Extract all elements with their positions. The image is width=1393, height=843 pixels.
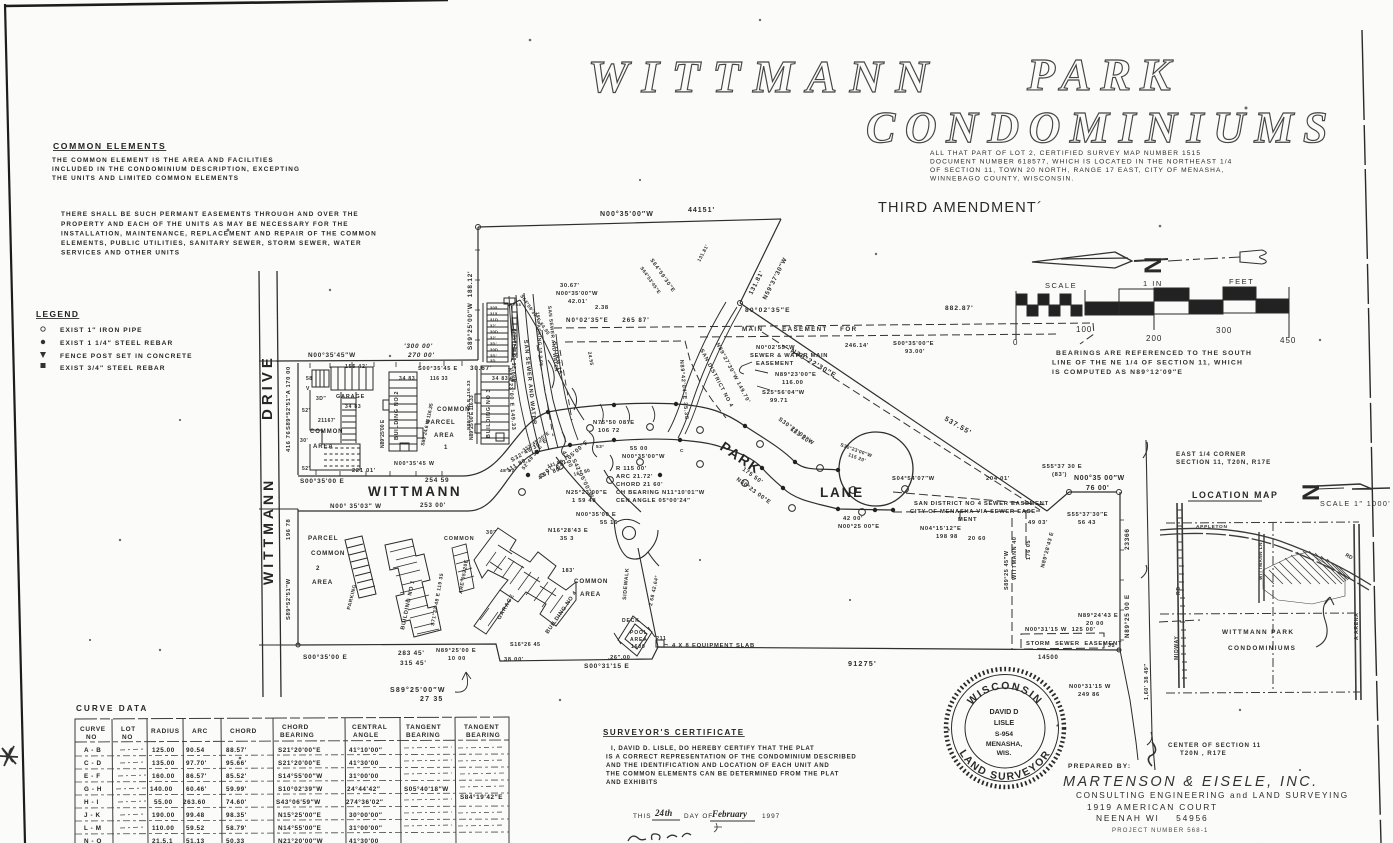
svg-text:DAY OF: DAY OF bbox=[684, 813, 713, 820]
svg-text:30D: 30D bbox=[490, 347, 498, 352]
svg-text:253 00': 253 00' bbox=[420, 502, 446, 509]
svg-text:21.5.1: 21.5.1 bbox=[152, 838, 173, 843]
svg-text:ANGLE: ANGLE bbox=[353, 732, 379, 739]
svg-text:52': 52' bbox=[302, 466, 310, 472]
svg-text:BEARING: BEARING bbox=[466, 732, 500, 739]
svg-text:S89°25 45″W: S89°25 45″W bbox=[1004, 550, 1010, 590]
svg-text:3D: 3D bbox=[490, 358, 496, 363]
svg-text:48°97': 48°97' bbox=[500, 468, 516, 474]
svg-text:COMMON: COMMON bbox=[444, 536, 475, 542]
svg-text:SCALE: SCALE bbox=[1045, 281, 1077, 290]
svg-text:ARC 21.72': ARC 21.72' bbox=[616, 474, 653, 480]
svg-text:20 60: 20 60 bbox=[968, 536, 986, 542]
svg-text:EXIST 1″ IRON PIPE: EXIST 1″ IRON PIPE bbox=[60, 327, 143, 334]
svg-text:93.00': 93.00' bbox=[905, 349, 925, 355]
svg-text:S-954: S-954 bbox=[995, 731, 1013, 738]
svg-text:N89°25'00 E: N89°25'00 E bbox=[436, 648, 476, 654]
svg-text:116.00: 116.00 bbox=[782, 380, 804, 386]
svg-text:50.33: 50.33 bbox=[226, 838, 245, 843]
svg-text:N89°23'00″E: N89°23'00″E bbox=[775, 372, 817, 378]
svg-text:INSTALLATION, MAINTENANCE, R: INSTALLATION, MAINTENANCE, REPLACEMENT A… bbox=[61, 231, 377, 238]
svg-text:3D″: 3D″ bbox=[316, 396, 326, 402]
svg-text:THERE SHALL BE SUCH PERMA: THERE SHALL BE SUCH PERMANT EASEMENTS TH… bbox=[61, 211, 359, 218]
svg-text:N00°31'15 W: N00°31'15 W bbox=[1069, 684, 1111, 690]
svg-text:97.70': 97.70' bbox=[186, 760, 207, 767]
svg-text:30.67': 30.67' bbox=[470, 365, 492, 372]
svg-text:52': 52' bbox=[302, 408, 310, 414]
svg-text:TANGENT: TANGENT bbox=[406, 724, 441, 731]
svg-text:53°: 53° bbox=[596, 444, 604, 450]
svg-text:S00°35'00″E: S00°35'00″E bbox=[893, 341, 934, 347]
svg-text:110.00: 110.00 bbox=[152, 825, 175, 832]
svg-text:1,60' 38 49″: 1,60' 38 49″ bbox=[1144, 663, 1150, 700]
svg-text:BEARINGS ARE REFERENCED TO: BEARINGS ARE REFERENCED TO THE SOUTH bbox=[1056, 350, 1252, 357]
svg-text:99.48: 99.48 bbox=[186, 812, 205, 819]
svg-text:COMMON ELEMENTS: COMMON ELEMENTS bbox=[53, 141, 166, 151]
svg-text:AND EXHIBITS: AND EXHIBITS bbox=[606, 779, 658, 786]
svg-text:2.38: 2.38 bbox=[595, 305, 609, 311]
svg-text:CH BEARING N11°10'01″W: CH BEARING N11°10'01″W bbox=[616, 490, 705, 496]
svg-text:N04°15'12″E: N04°15'12″E bbox=[920, 526, 962, 532]
svg-text:1997: 1997 bbox=[762, 813, 780, 820]
svg-text:24°44'42″: 24°44'42″ bbox=[347, 785, 380, 793]
svg-text:176 05: 176 05 bbox=[1026, 540, 1032, 560]
svg-text:1919 AMERICAN COURT: 1919 AMERICAN COURT bbox=[1087, 802, 1218, 812]
svg-text:N89°25 00 E: N89°25 00 E bbox=[1124, 594, 1131, 638]
svg-text:N00°35'00″W: N00°35'00″W bbox=[556, 291, 598, 297]
svg-text:COMMON: COMMON bbox=[311, 550, 345, 557]
svg-text:41°10'00″: 41°10'00″ bbox=[349, 746, 382, 754]
svg-text:THE COMMON ELEMENT IS THE: THE COMMON ELEMENT IS THE AREA AND FACIL… bbox=[52, 157, 274, 164]
svg-text:S14°55'00″W: S14°55'00″W bbox=[278, 772, 323, 780]
svg-text:300: 300 bbox=[1216, 326, 1232, 335]
svg-text:WITTMANN LN: WITTMANN LN bbox=[1258, 542, 1263, 580]
svg-text:DECK: DECK bbox=[622, 618, 640, 624]
svg-text:35 3: 35 3 bbox=[560, 536, 574, 542]
svg-text:249 86: 249 86 bbox=[1078, 692, 1100, 698]
svg-text:AREA: AREA bbox=[313, 444, 334, 450]
svg-text:60.46': 60.46' bbox=[186, 786, 207, 793]
svg-text:315: 315 bbox=[490, 311, 498, 316]
svg-text:74.60': 74.60' bbox=[226, 799, 247, 806]
svg-text:55 00: 55 00 bbox=[630, 446, 648, 452]
svg-text:SECTION 11, T20N, R17E: SECTION 11, T20N, R17E bbox=[1176, 459, 1271, 466]
svg-text:416 76: 416 76 bbox=[286, 430, 292, 452]
svg-text:February: February bbox=[711, 809, 748, 819]
svg-text:N15°25'00″E: N15°25'00″E bbox=[278, 811, 321, 819]
svg-text:211: 211 bbox=[656, 636, 667, 642]
svg-text:C - D: C - D bbox=[84, 760, 102, 767]
svg-text:WITTMANN: WITTMANN bbox=[260, 477, 276, 585]
svg-text:99.71: 99.71 bbox=[770, 398, 788, 404]
svg-text:2.38: 2.38 bbox=[512, 302, 521, 307]
svg-text:AREA: AREA bbox=[580, 591, 601, 598]
svg-text:PARCEL: PARCEL bbox=[308, 535, 338, 542]
svg-text:PROJECT NUMBER 568-1: PROJECT NUMBER 568-1 bbox=[1112, 828, 1209, 834]
svg-text:198 98: 198 98 bbox=[936, 534, 958, 540]
svg-text:98.35': 98.35' bbox=[226, 812, 247, 819]
svg-text:41°30'00: 41°30'00 bbox=[349, 837, 379, 843]
svg-text:N00°35 00″W: N00°35 00″W bbox=[1074, 474, 1125, 482]
svg-text:*: * bbox=[1056, 723, 1059, 732]
svg-text:N0°02'55″W: N0°02'55″W bbox=[756, 345, 795, 351]
svg-text:450: 450 bbox=[1280, 336, 1296, 345]
svg-text:S25°56'04″W: S25°56'04″W bbox=[762, 390, 805, 396]
svg-text:LANE: LANE bbox=[820, 485, 864, 500]
svg-text:55.00: 55.00 bbox=[154, 799, 173, 806]
svg-text:34 83: 34 83 bbox=[399, 376, 416, 382]
svg-text:263.60: 263.60 bbox=[183, 799, 206, 806]
svg-text:CITY OF MENASHA VIA SEWER: CITY OF MENASHA VIA SEWER EASE bbox=[910, 509, 1036, 515]
svg-text:N21°20'00″W: N21°20'00″W bbox=[278, 837, 323, 843]
svg-text:LOCATION MAP: LOCATION MAP bbox=[1192, 490, 1278, 500]
svg-text:N00°25 00″E: N00°25 00″E bbox=[838, 524, 880, 530]
svg-text:IS COMPUTED AS N89°12'09″E: IS COMPUTED AS N89°12'09″E bbox=[1052, 368, 1183, 376]
svg-text:270 00': 270 00' bbox=[407, 352, 435, 359]
svg-text:CEN ANGLE 05°00'24″: CEN ANGLE 05°00'24″ bbox=[616, 498, 691, 504]
svg-text:S00°35'00 E: S00°35'00 E bbox=[303, 653, 348, 661]
svg-text:LINE OF THE NE 1/4 OF SEC: LINE OF THE NE 1/4 OF SECTION 11, WHICH bbox=[1052, 360, 1243, 367]
svg-text:S04°54'07″W: S04°54'07″W bbox=[892, 476, 935, 482]
svg-text:A ARENA: A ARENA bbox=[1354, 613, 1360, 640]
svg-text:S89°25'00″W 188.12': S89°25'00″W 188.12' bbox=[466, 271, 474, 350]
svg-text:N00°35'45 W: N00°35'45 W bbox=[394, 461, 435, 467]
svg-text:WITTMANN: WITTMANN bbox=[588, 51, 941, 102]
svg-text:274°36'02″: 274°36'02″ bbox=[346, 798, 384, 806]
svg-text:41°30'00: 41°30'00 bbox=[349, 759, 379, 767]
svg-text:55 16: 55 16 bbox=[600, 520, 618, 526]
svg-text:91275': 91275' bbox=[848, 659, 877, 668]
svg-text:34 83: 34 83 bbox=[345, 404, 362, 410]
svg-text:30D: 30D bbox=[490, 329, 498, 334]
svg-text:24 th: 24 th bbox=[654, 808, 672, 818]
svg-text:S00°31'15 E: S00°31'15 E bbox=[584, 662, 630, 670]
svg-text:196 78: 196 78 bbox=[286, 518, 292, 540]
svg-text:56 43: 56 43 bbox=[1078, 520, 1096, 526]
svg-text:SURVEYOR'S CERTIFICATE: SURVEYOR'S CERTIFICATE bbox=[603, 728, 745, 737]
svg-text:315 45': 315 45' bbox=[400, 660, 427, 667]
svg-text:THIS: THIS bbox=[633, 813, 652, 820]
svg-text:*: * bbox=[947, 727, 950, 736]
svg-text:AND THE IDENTIFICATION AND: AND THE IDENTIFICATION AND LOCATION OF E… bbox=[606, 762, 830, 769]
svg-text:THE UNITS AND LIMITED COM: THE UNITS AND LIMITED COMMON ELEMENTS bbox=[52, 175, 239, 182]
svg-text:CURVE DATA: CURVE DATA bbox=[76, 704, 148, 713]
svg-text:E - F: E - F bbox=[84, 773, 101, 780]
svg-text:LISLE: LISLE bbox=[994, 718, 1015, 727]
svg-text:COMMON: COMMON bbox=[574, 578, 608, 585]
svg-text:190.00: 190.00 bbox=[152, 812, 175, 819]
svg-text:1: 1 bbox=[444, 445, 448, 451]
svg-text:ALL THAT PART OF LOT 2, CE: ALL THAT PART OF LOT 2, CERTIFIED SURVEY… bbox=[930, 150, 1201, 157]
svg-text:THIRD AMENDMENT´: THIRD AMENDMENT´ bbox=[878, 200, 1043, 216]
svg-text:882.87': 882.87' bbox=[945, 305, 974, 312]
svg-text:RD: RD bbox=[1176, 586, 1182, 595]
svg-text:C: C bbox=[680, 448, 684, 454]
svg-text:SCALE 1″ 1000': SCALE 1″ 1000' bbox=[1320, 499, 1391, 508]
svg-text:254 59: 254 59 bbox=[425, 477, 449, 484]
svg-text:N89°25'00 E: N89°25'00 E bbox=[380, 419, 386, 448]
svg-text:CONDOMINIUMS: CONDOMINIUMS bbox=[866, 103, 1337, 152]
svg-text:125.00: 125.00 bbox=[152, 747, 175, 754]
svg-text:MENT: MENT bbox=[958, 517, 977, 523]
svg-text:BEARING: BEARING bbox=[280, 732, 314, 739]
svg-text:H - I: H - I bbox=[84, 799, 99, 806]
svg-text:DAVID D: DAVID D bbox=[989, 707, 1018, 716]
svg-text:85.52': 85.52' bbox=[226, 773, 247, 780]
svg-text:200: 200 bbox=[1146, 334, 1162, 343]
svg-text:N00°31'15 W 125 00': N00°31'15 W 125 00' bbox=[1025, 627, 1096, 633]
svg-text:MIDWAY: MIDWAY bbox=[1174, 636, 1180, 660]
svg-text:S10°02'39″W: S10°02'39″W bbox=[278, 785, 323, 793]
svg-text:S89°25'00″W: S89°25'00″W bbox=[390, 686, 446, 694]
svg-text:S00°35'00 E: S00°35'00 E bbox=[300, 477, 345, 485]
svg-text:246.14': 246.14' bbox=[845, 343, 869, 349]
svg-text:32': 32' bbox=[490, 323, 496, 328]
svg-text:CONSULTING ENGINEERING and: CONSULTING ENGINEERING and LAND SURVEYIN… bbox=[1076, 791, 1349, 800]
svg-text:DRIVE: DRIVE bbox=[259, 354, 276, 420]
svg-text:S55°37 30 E: S55°37 30 E bbox=[1042, 464, 1082, 470]
svg-text:AREA: AREA bbox=[630, 637, 648, 643]
svg-text:EXIST 3/4″ STEEL REBAR: EXIST 3/4″ STEEL REBAR bbox=[60, 365, 166, 372]
svg-text:L - M: L - M bbox=[84, 825, 102, 832]
svg-text:S89°52'51″A 170 00: S89°52'51″A 170 00 bbox=[286, 366, 292, 430]
svg-text:N16°28'43 E: N16°28'43 E bbox=[548, 528, 588, 534]
svg-text:49 03': 49 03' bbox=[1028, 520, 1048, 526]
svg-text:30.67': 30.67' bbox=[560, 283, 580, 289]
svg-text:14500: 14500 bbox=[1038, 655, 1059, 661]
svg-text:3D': 3D' bbox=[490, 341, 497, 346]
svg-text:23366: 23366 bbox=[1124, 528, 1131, 550]
svg-text:WIS.: WIS. bbox=[997, 750, 1012, 757]
svg-text:(83'): (83') bbox=[1052, 472, 1067, 478]
svg-text:283 45': 283 45' bbox=[398, 650, 425, 657]
svg-text:34 83: 34 83 bbox=[492, 376, 509, 382]
svg-text:58: 58 bbox=[306, 376, 313, 382]
svg-text:LEGEND: LEGEND bbox=[36, 309, 79, 319]
svg-text:WITTMANN 40: WITTMANN 40 bbox=[1012, 537, 1018, 580]
svg-text:140.00: 140.00 bbox=[150, 786, 173, 793]
svg-text:WITTMANN: WITTMANN bbox=[368, 484, 462, 499]
svg-text:SERVICES AND OTHER UNITS: SERVICES AND OTHER UNITS bbox=[61, 250, 180, 257]
svg-text:31°00'00″: 31°00'00″ bbox=[349, 824, 382, 832]
svg-text:SEWER & WATER MAIN: SEWER & WATER MAIN bbox=[750, 353, 828, 359]
svg-text:160.00: 160.00 bbox=[152, 773, 175, 780]
svg-text:CENTRAL: CENTRAL bbox=[352, 724, 387, 731]
svg-text:NO: NO bbox=[122, 734, 133, 741]
svg-text:MENASHA,: MENASHA, bbox=[986, 741, 1022, 748]
svg-text:S16°26 45: S16°26 45 bbox=[510, 642, 541, 648]
svg-text:31D: 31D bbox=[490, 317, 498, 322]
svg-text:1 59 48: 1 59 48 bbox=[572, 498, 596, 504]
svg-text:DOCUMENT NUMBER 618577, WHIC: DOCUMENT NUMBER 618577, WHICH IS LOCATED… bbox=[930, 159, 1232, 166]
svg-text:EXIST 1 1/4″ STEEL REBAR: EXIST 1 1/4″ STEEL REBAR bbox=[60, 340, 173, 347]
svg-text:10 00: 10 00 bbox=[448, 656, 466, 662]
svg-text:COMMON: COMMON bbox=[310, 429, 343, 435]
svg-text:PROPERTY AND EACH OF THE: PROPERTY AND EACH OF THE UNITS AS MAY BE… bbox=[61, 221, 349, 228]
svg-text:NO: NO bbox=[86, 734, 97, 741]
svg-text:CONDOMINIUMS: CONDOMINIUMS bbox=[1228, 645, 1296, 652]
svg-text:116 33: 116 33 bbox=[430, 376, 448, 382]
svg-text:204 01': 204 01' bbox=[986, 476, 1010, 482]
svg-text:G - H: G - H bbox=[84, 786, 102, 793]
svg-text:COMMON: COMMON bbox=[437, 407, 470, 413]
svg-text:N00°35'00″W: N00°35'00″W bbox=[600, 210, 654, 218]
svg-text:NEENAH WI 54956: NEENAH WI 54956 bbox=[1096, 813, 1208, 823]
svg-text:MAIN EASEMENT FOR: MAIN EASEMENT FOR bbox=[742, 326, 857, 333]
svg-text:EAST 1/4 CORNER: EAST 1/4 CORNER bbox=[1176, 451, 1246, 458]
svg-text:N89°25 00 E 116 33: N89°25 00 E 116 33 bbox=[512, 328, 518, 382]
svg-text:CHORD: CHORD bbox=[282, 724, 309, 731]
svg-text:S21°20'00″E: S21°20'00″E bbox=[278, 759, 321, 767]
svg-text:ELEMENTS, PUBLIC UTILITIES,: ELEMENTS, PUBLIC UTILITIES, SANITARY SEW… bbox=[61, 240, 362, 247]
svg-text:FEET: FEET bbox=[1229, 277, 1254, 286]
svg-text:GARAGE: GARAGE bbox=[336, 394, 365, 400]
svg-text:S00°35'45 E: S00°35'45 E bbox=[418, 366, 458, 372]
svg-text:,26″.00: ,26″.00 bbox=[608, 655, 630, 661]
svg-text:S43°06'59″W: S43°06'59″W bbox=[276, 798, 321, 806]
svg-text:N14°55'00″E: N14°55'00″E bbox=[278, 824, 321, 832]
svg-text:30': 30' bbox=[300, 438, 308, 444]
svg-text:38 00': 38 00' bbox=[504, 657, 524, 663]
svg-text:N89°24'43 E: N89°24'43 E bbox=[1078, 613, 1118, 619]
svg-text:106 72: 106 72 bbox=[598, 428, 620, 434]
svg-text:POOL: POOL bbox=[630, 630, 648, 636]
svg-text:BUILDING NO 2: BUILDING NO 2 bbox=[394, 391, 400, 440]
svg-text:80°02'35″E: 80°02'35″E bbox=[745, 306, 791, 314]
svg-text:42 00': 42 00' bbox=[843, 516, 863, 522]
svg-text:S05°40'18″W: S05°40'18″W bbox=[404, 785, 449, 793]
svg-text:30°00'00″: 30°00'00″ bbox=[349, 811, 382, 819]
svg-text:CHORD 21 60': CHORD 21 60' bbox=[616, 482, 663, 488]
svg-text:N00°35'00″W: N00°35'00″W bbox=[622, 454, 665, 460]
svg-text:N0°02'35″E 265 87': N0°02'35″E 265 87' bbox=[566, 317, 650, 324]
svg-text:CURVE: CURVE bbox=[80, 726, 106, 733]
svg-text:221 01': 221 01' bbox=[352, 468, 376, 474]
svg-text:N - O: N - O bbox=[84, 838, 102, 843]
svg-text:N89°23'00 E 116.33: N89°23'00 E 116.33 bbox=[466, 380, 472, 430]
svg-text:4 X 8 EQUIPMENT SLAB: 4 X 8 EQUIPMENT SLAB bbox=[672, 643, 755, 649]
svg-text:LOT: LOT bbox=[121, 726, 136, 733]
svg-text:21167': 21167' bbox=[318, 418, 336, 424]
svg-text:EASEMENT: EASEMENT bbox=[756, 361, 794, 367]
svg-text:155 42': 155 42' bbox=[345, 364, 368, 370]
svg-text:N00°35'00 E: N00°35'00 E bbox=[576, 512, 616, 518]
svg-text:51.13: 51.13 bbox=[186, 838, 205, 843]
svg-text:S89°52'51″W: S89°52'51″W bbox=[286, 578, 292, 620]
svg-text:TANGENT: TANGENT bbox=[464, 724, 499, 731]
svg-text:90.54: 90.54 bbox=[186, 747, 205, 754]
svg-text:27 35: 27 35 bbox=[420, 696, 444, 703]
svg-text:42.01': 42.01' bbox=[568, 299, 588, 305]
svg-text:59.99': 59.99' bbox=[226, 786, 247, 793]
svg-text:AREA: AREA bbox=[312, 579, 333, 586]
svg-text:SAN DISTRICT NO 4 SEWER EA: SAN DISTRICT NO 4 SEWER EASEMENT bbox=[914, 501, 1049, 507]
svg-text:0: 0 bbox=[1013, 338, 1018, 347]
svg-text:88.57': 88.57' bbox=[226, 747, 247, 754]
svg-text:100: 100 bbox=[1076, 325, 1092, 334]
svg-text:N00°35'45″W: N00°35'45″W bbox=[308, 351, 356, 359]
svg-text:76 00': 76 00' bbox=[1086, 485, 1109, 492]
svg-text:59.52: 59.52 bbox=[186, 825, 205, 832]
svg-text:135.00: 135.00 bbox=[152, 760, 175, 767]
svg-text:BEARING: BEARING bbox=[406, 732, 440, 739]
svg-text:305: 305 bbox=[490, 305, 498, 310]
svg-text:I, DAVID D. LISLE, DO HEREB: I, DAVID D. LISLE, DO HEREBY CERTIFY THA… bbox=[611, 745, 815, 752]
svg-text:V: V bbox=[306, 386, 310, 392]
svg-text:APPLETON: APPLETON bbox=[1196, 524, 1228, 530]
svg-text:IS A CORRECT REPRESENTATION: IS A CORRECT REPRESENTATION OF THE CONDO… bbox=[606, 754, 857, 761]
svg-text:RADIUS: RADIUS bbox=[151, 728, 180, 735]
svg-text:86.57': 86.57' bbox=[186, 773, 207, 780]
svg-text:N00° 35'03″ W: N00° 35'03″ W bbox=[330, 503, 382, 510]
svg-text:BUILDING NO 3: BUILDING NO 3 bbox=[486, 389, 492, 438]
svg-text:35: 35 bbox=[1108, 643, 1115, 649]
svg-text:1600: 1600 bbox=[631, 644, 646, 650]
svg-text:44151': 44151' bbox=[688, 207, 715, 214]
svg-text:1 IN: 1 IN bbox=[1143, 279, 1163, 288]
svg-text:WINNEBAGO COUNTY, WISCONSIN.: WINNEBAGO COUNTY, WISCONSIN. bbox=[930, 176, 1074, 183]
svg-text:ARC: ARC bbox=[192, 728, 208, 735]
svg-text:CHORD: CHORD bbox=[230, 728, 257, 735]
svg-text:S55°37'30″E: S55°37'30″E bbox=[1067, 512, 1108, 518]
svg-text:S84°19'42″E: S84°19'42″E bbox=[460, 793, 503, 801]
svg-text:FENCE POST SET IN CONCRETE: FENCE POST SET IN CONCRETE bbox=[60, 353, 193, 360]
svg-text:OF SECTION 11, TOWN 20 NOR: OF SECTION 11, TOWN 20 NORTH, RANGE 17 E… bbox=[930, 167, 1224, 174]
svg-text:CENTER OF SECTION 11: CENTER OF SECTION 11 bbox=[1168, 742, 1261, 749]
svg-text:R 115 00': R 115 00' bbox=[616, 466, 647, 472]
svg-text:INCLUDED IN THE CONDOMINIU: INCLUDED IN THE CONDOMINIUM DESCRIPTION,… bbox=[52, 166, 300, 173]
svg-text:58.79': 58.79' bbox=[226, 825, 247, 832]
svg-text:31°00'00: 31°00'00 bbox=[349, 772, 379, 780]
svg-text:T20N , R17E: T20N , R17E bbox=[1180, 750, 1227, 757]
svg-text:PREPARED BY:: PREPARED BY: bbox=[1068, 763, 1131, 770]
svg-text:J - K: J - K bbox=[84, 812, 101, 819]
svg-text:30″: 30″ bbox=[486, 530, 496, 536]
svg-text:95.66': 95.66' bbox=[226, 760, 247, 767]
svg-text:WITTMANN PARK: WITTMANN PARK bbox=[1222, 629, 1294, 636]
svg-text:32': 32' bbox=[490, 335, 496, 340]
svg-text:N: N bbox=[1140, 257, 1167, 274]
svg-text:AREA: AREA bbox=[434, 433, 455, 439]
svg-text:183': 183' bbox=[562, 568, 575, 574]
svg-text:MARTENSON & EISELE, INC.: MARTENSON & EISELE, INC. bbox=[1063, 774, 1319, 790]
svg-text:2: 2 bbox=[316, 565, 320, 572]
svg-text:'300 00': '300 00' bbox=[404, 343, 433, 350]
svg-text:S21°20'00″E: S21°20'00″E bbox=[278, 746, 321, 754]
svg-text:PARK: PARK bbox=[1026, 49, 1180, 100]
svg-text:THE COMMON ELEMENTS CAN BE: THE COMMON ELEMENTS CAN BE DETERMINED FR… bbox=[606, 771, 839, 778]
svg-text:A - B: A - B bbox=[84, 747, 101, 754]
